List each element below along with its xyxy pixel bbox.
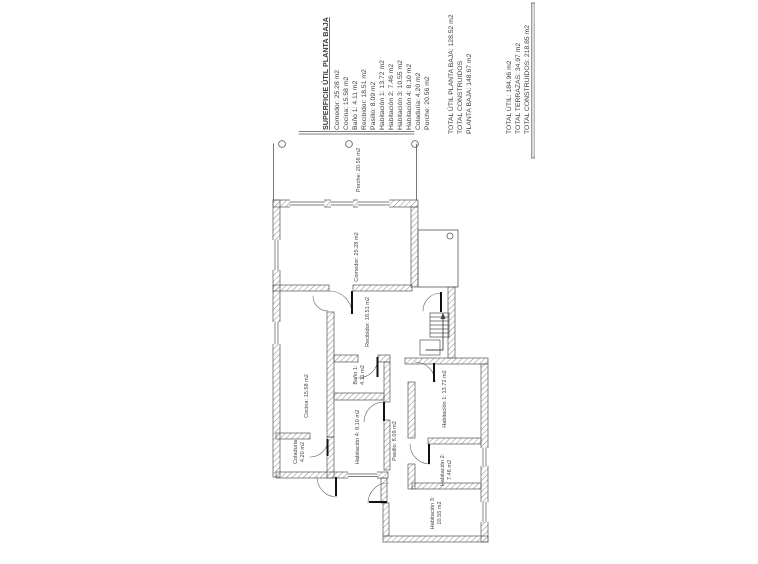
total-construidos-label: TOTAL CONSTRUIDOS: [457, 60, 464, 134]
total-terrazas: TOTAL TERRAZAS: 34.97 m2: [515, 43, 522, 134]
legend-item-pasillo: Pasillo: 8.09 m2: [370, 81, 377, 130]
room-label-pasillo: Pasillo: 8.09 m2: [392, 421, 398, 461]
entry-porch: [418, 230, 458, 287]
floor-plan-drawing: SUPERFICIE ÚTIL PLANTA BAJA Comedor: 25.…: [0, 0, 758, 564]
room-label-bano1-line1: Baño 1:: [353, 365, 359, 385]
legend-item-habitacion2: Habitación 2: 7.46 m2: [388, 64, 395, 130]
room-label-porche: Porche: 20.56 m2: [356, 148, 362, 192]
room-label-coladuria-line2: 4.20 m2: [300, 442, 306, 462]
staircase: [420, 313, 449, 356]
legend-item-cocina: Cocina: 15.58 m2: [343, 77, 350, 130]
walls: [273, 200, 488, 542]
legend-item-comedor: Comedor: 25.28 m2: [334, 70, 341, 130]
legend-item-recibidor: Recibidor: 18.51 m2: [361, 69, 368, 130]
plan: Porche: 20.56 m2 Comedor: 25.28 m2 Recib…: [273, 132, 489, 543]
room-label-bano1-line2: 4.11 m2: [360, 365, 366, 385]
room-label-coladuria-line1: Coladuria: [293, 439, 299, 464]
legend-item-bano1: Baño 1: 4.11 m2: [352, 80, 359, 130]
stair-direction-arrow-icon: [441, 313, 446, 320]
legend-item-habitacion4: Habitación 4: 8.10 m2: [406, 64, 413, 130]
totals-block-planta-baja: TOTAL ÚTIL PLANTA BAJA: 128.52 m2 TOTAL …: [446, 14, 473, 134]
legend-item-coladuria: Coladuria: 4.20 m2: [415, 72, 422, 130]
legend-item-habitacion3: Habitación 3: 10.55 m2: [397, 60, 404, 130]
legend: SUPERFICIE ÚTIL PLANTA BAJA Comedor: 25.…: [321, 3, 535, 158]
porche-structure: [274, 132, 419, 201]
total-construidos-planta-baja: PLANTA BAJA: 148.67 m2: [466, 53, 473, 134]
scanned-floor-plan-page: SUPERFICIE ÚTIL PLANTA BAJA Comedor: 25.…: [0, 0, 758, 564]
room-label-habitacion3-line1: Habitación 3:: [430, 496, 436, 529]
room-label-cocina: Cocina: 15.58 m2: [304, 374, 310, 418]
total-util: TOTAL ÚTIL: 184.96 m2: [504, 60, 513, 134]
legend-item-porche: Porche: 20.56 m2: [424, 76, 431, 130]
legend-rule-line: [531, 3, 535, 158]
room-label-habitacion1: Habitación 1: 13.72 m2: [442, 370, 448, 428]
legend-title: SUPERFICIE ÚTIL PLANTA BAJA: [321, 17, 330, 130]
room-label-habitacion2-line1: Habitación 2:: [440, 453, 446, 486]
room-label-comedor: Comedor: 25.28 m2: [354, 232, 360, 281]
room-label-recibidor: Recibidor: 18.51 m2: [365, 297, 371, 347]
room-label-habitacion4: Habitación 4: 8.10 m2: [355, 410, 361, 464]
totals-block-general: TOTAL ÚTIL: 184.96 m2 TOTAL TERRAZAS: 34…: [504, 25, 531, 134]
legend-item-habitacion1: Habitación 1: 13.72 m2: [379, 60, 386, 130]
room-label-habitacion2-line2: 7.46 m2: [447, 460, 453, 480]
total-construidos: TOTAL CONSTRUIDOS: 218.85 m2: [524, 25, 531, 134]
total-util-planta-baja: TOTAL ÚTIL PLANTA BAJA: 128.52 m2: [446, 14, 455, 134]
room-label-habitacion3-line2: 10.55 m2: [437, 501, 443, 524]
